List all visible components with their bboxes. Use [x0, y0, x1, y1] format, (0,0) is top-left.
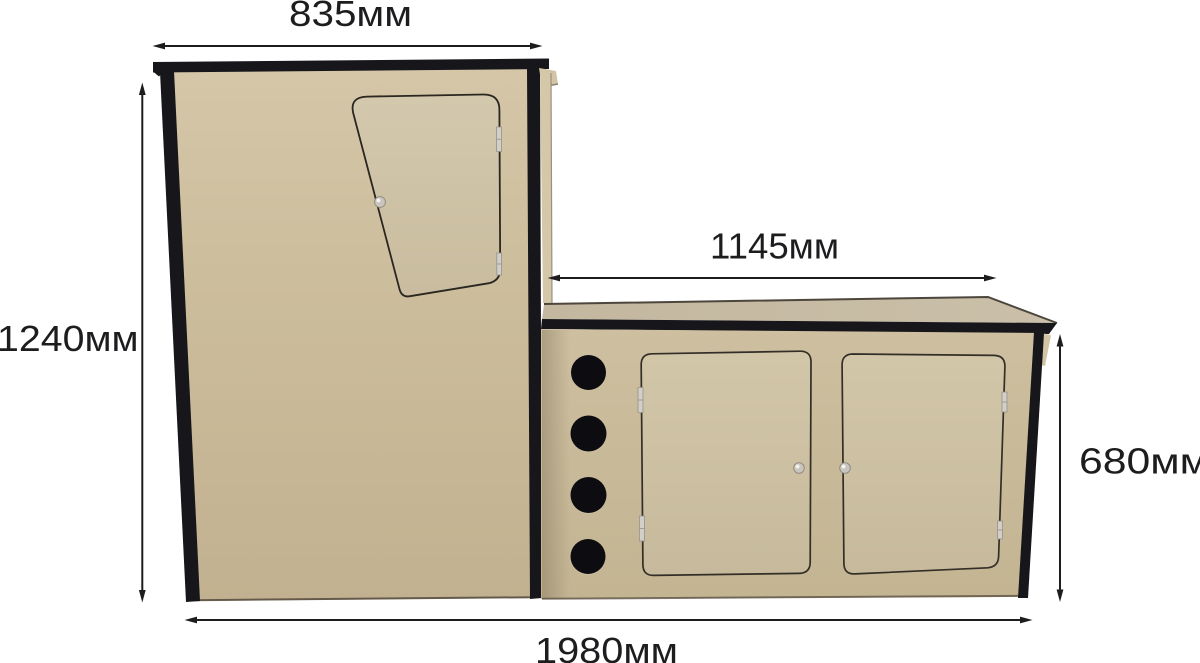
- svg-text:680мм: 680мм: [1079, 440, 1200, 481]
- svg-text:1145мм: 1145мм: [710, 226, 839, 267]
- svg-text:1240мм: 1240мм: [0, 318, 139, 359]
- svg-text:835мм: 835мм: [289, 0, 412, 34]
- svg-text:1980мм: 1980мм: [535, 630, 678, 663]
